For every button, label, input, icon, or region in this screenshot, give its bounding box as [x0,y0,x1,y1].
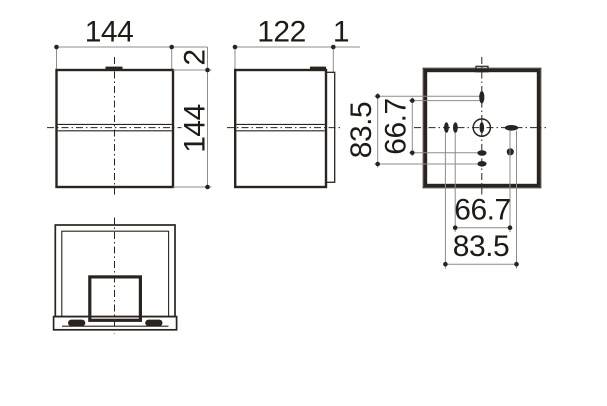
hole-below-center-upper [477,150,486,156]
bottom-view [54,218,177,335]
dim-dot [205,185,210,190]
keyhole-slot-left-outer [444,122,449,133]
bottom-outline-outer [55,225,175,317]
bottom-outline-inner [62,231,169,316]
dim-dot [375,162,380,167]
front-top-offset-label: 2 [179,49,212,65]
rear-vert-inner-dim-label: 66.7 [380,98,413,154]
keyhole-slot-left-inner [453,122,458,133]
keyhole-slot-right [505,125,519,131]
dim-dot [54,45,59,50]
dim-dot [169,45,174,50]
dim-dot [443,262,448,267]
side-depth-dim-label: 122 [257,16,306,49]
center-screw-slot [480,122,485,133]
front-view: 144 2 144 [47,16,212,197]
drawing-svg: 144 2 144 122 1 [0,0,607,406]
side-view: 122 1 [227,16,360,188]
foot-pad-left [68,320,85,327]
rear-vert-outer-dim-label: 83.5 [345,102,378,158]
hole-below-center-lower [477,161,486,167]
dim-dot [375,94,380,99]
front-width-dim-label: 144 [85,16,134,49]
foot-pad-right [145,320,162,327]
side-plate-dim-label: 1 [333,16,349,49]
side-top-tab [310,67,326,71]
rear-horiz-inner-dim-label: 66.7 [454,194,510,227]
dim-dot [233,45,238,50]
dim-dot [205,68,210,73]
bottom-opening [90,277,141,320]
front-height-dim-label: 144 [179,104,212,153]
keyhole-slot-top [479,91,484,103]
side-body-outline [235,70,326,187]
dim-dot [514,262,519,267]
rear-view: 83.5 66.7 66.7 83.5 [345,57,546,269]
rear-horiz-outer-dim-label: 83.5 [453,230,509,263]
technical-drawing-page: 144 2 144 122 1 [0,0,607,406]
